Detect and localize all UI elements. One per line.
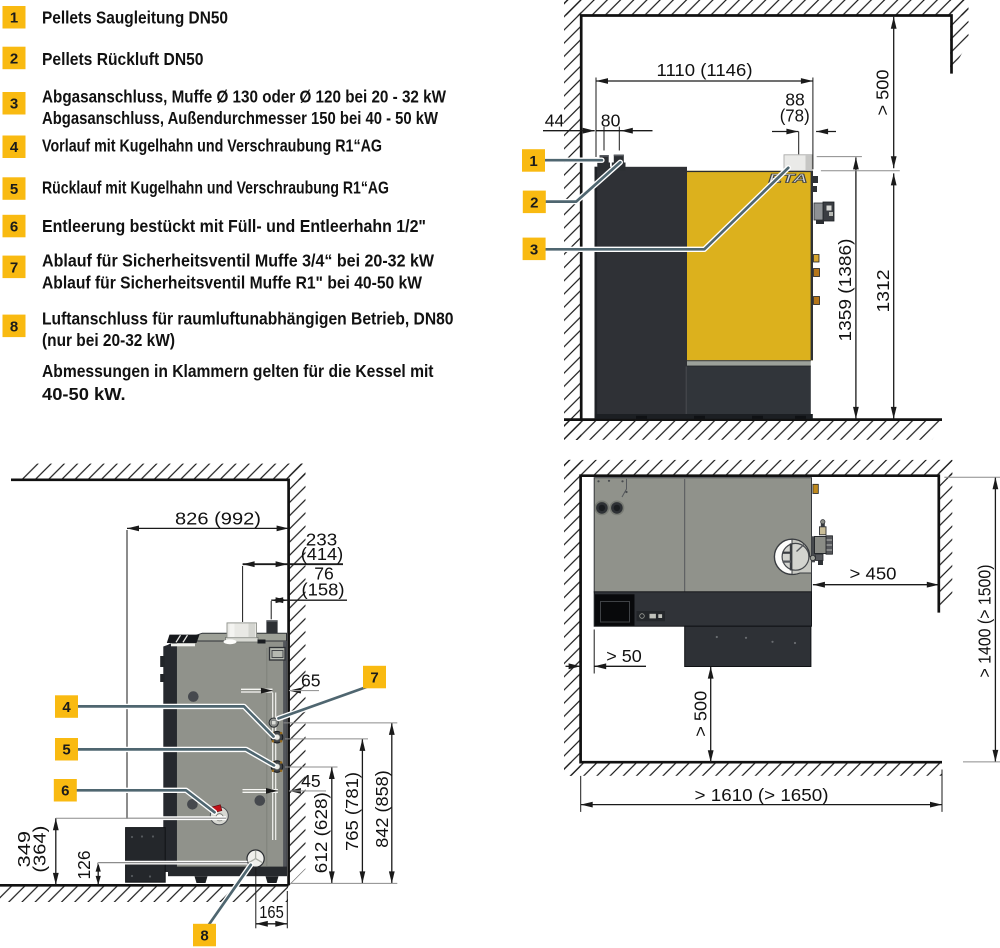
svg-text:826 (992): 826 (992) xyxy=(175,509,261,529)
svg-text:Abmessungen in Klammern gelten: Abmessungen in Klammern gelten für die K… xyxy=(42,361,434,381)
svg-text:Entleerung bestückt mit Füll-: Entleerung bestückt mit Füll- und Entlee… xyxy=(42,216,426,236)
svg-text:(158): (158) xyxy=(302,579,345,599)
svg-text:1312: 1312 xyxy=(873,270,893,313)
svg-text:40-50 kW.: 40-50 kW. xyxy=(42,384,126,404)
svg-text:6: 6 xyxy=(61,783,69,800)
svg-text:165: 165 xyxy=(259,902,284,922)
svg-text:Pellets Saugleitung DN50: Pellets Saugleitung DN50 xyxy=(42,8,228,28)
svg-text:8: 8 xyxy=(10,318,18,335)
svg-text:Ablauf für Sicherheitsventil M: Ablauf für Sicherheitsventil Muffe R1" b… xyxy=(42,272,422,292)
svg-text:Abgasanschluss, Muffe Ø 130 od: Abgasanschluss, Muffe Ø 130 oder Ø 120 b… xyxy=(42,87,446,107)
svg-text:> 450: > 450 xyxy=(850,564,897,584)
svg-text:Ablauf für Sicherheitsventil M: Ablauf für Sicherheitsventil Muffe 3/4“ … xyxy=(42,251,434,271)
svg-text:2: 2 xyxy=(10,50,18,67)
svg-text:765 (781): 765 (781) xyxy=(342,772,362,851)
svg-text:612 (628): 612 (628) xyxy=(311,792,331,873)
svg-text:45: 45 xyxy=(301,771,321,791)
svg-text:Pellets Rückluft DN50: Pellets Rückluft DN50 xyxy=(42,49,204,69)
svg-text:> 1610 (> 1650): > 1610 (> 1650) xyxy=(695,785,829,805)
svg-text:8: 8 xyxy=(200,927,208,944)
svg-text:3: 3 xyxy=(530,241,538,258)
svg-text:1359 (1386): 1359 (1386) xyxy=(835,239,855,342)
svg-text:65: 65 xyxy=(301,671,321,691)
svg-text:> 500: > 500 xyxy=(691,691,711,737)
svg-text:5: 5 xyxy=(62,742,70,759)
svg-text:4: 4 xyxy=(62,699,71,716)
svg-text:(414): (414) xyxy=(301,544,344,564)
svg-text:6: 6 xyxy=(10,218,18,235)
svg-text:> 500: > 500 xyxy=(872,69,892,115)
svg-text:7: 7 xyxy=(10,259,18,276)
svg-text:5: 5 xyxy=(10,181,18,198)
svg-text:3: 3 xyxy=(10,96,18,113)
svg-text:Rücklauf mit Kugelhahn und Ver: Rücklauf mit Kugelhahn und Verschraubung… xyxy=(42,178,389,198)
svg-text:Luftanschluss für raumluftunab: Luftanschluss für raumluftunabhängigen B… xyxy=(42,308,454,328)
svg-text:1110 (1146): 1110 (1146) xyxy=(657,60,753,80)
svg-text:(nur bei 20-32 kW): (nur bei 20-32 kW) xyxy=(42,330,175,350)
svg-text:> 50: > 50 xyxy=(606,646,642,666)
svg-text:1: 1 xyxy=(529,153,537,170)
svg-text:Vorlauf mit Kugelhahn und Vers: Vorlauf mit Kugelhahn und Verschraubung … xyxy=(42,135,382,155)
svg-text:842 (858): 842 (858) xyxy=(372,770,392,848)
svg-text:Abgasanschluss, Außendurchmess: Abgasanschluss, Außendurchmesser 150 bei… xyxy=(42,108,438,128)
svg-text:7: 7 xyxy=(370,669,378,686)
svg-text:(364): (364) xyxy=(30,826,50,873)
svg-text:(78): (78) xyxy=(780,105,810,125)
svg-text:44: 44 xyxy=(545,110,565,130)
svg-text:126: 126 xyxy=(74,850,94,879)
svg-text:> 1400 (> 1500): > 1400 (> 1500) xyxy=(974,565,994,678)
svg-text:4: 4 xyxy=(10,139,19,156)
svg-text:2: 2 xyxy=(530,194,538,211)
svg-text:1: 1 xyxy=(10,10,18,27)
